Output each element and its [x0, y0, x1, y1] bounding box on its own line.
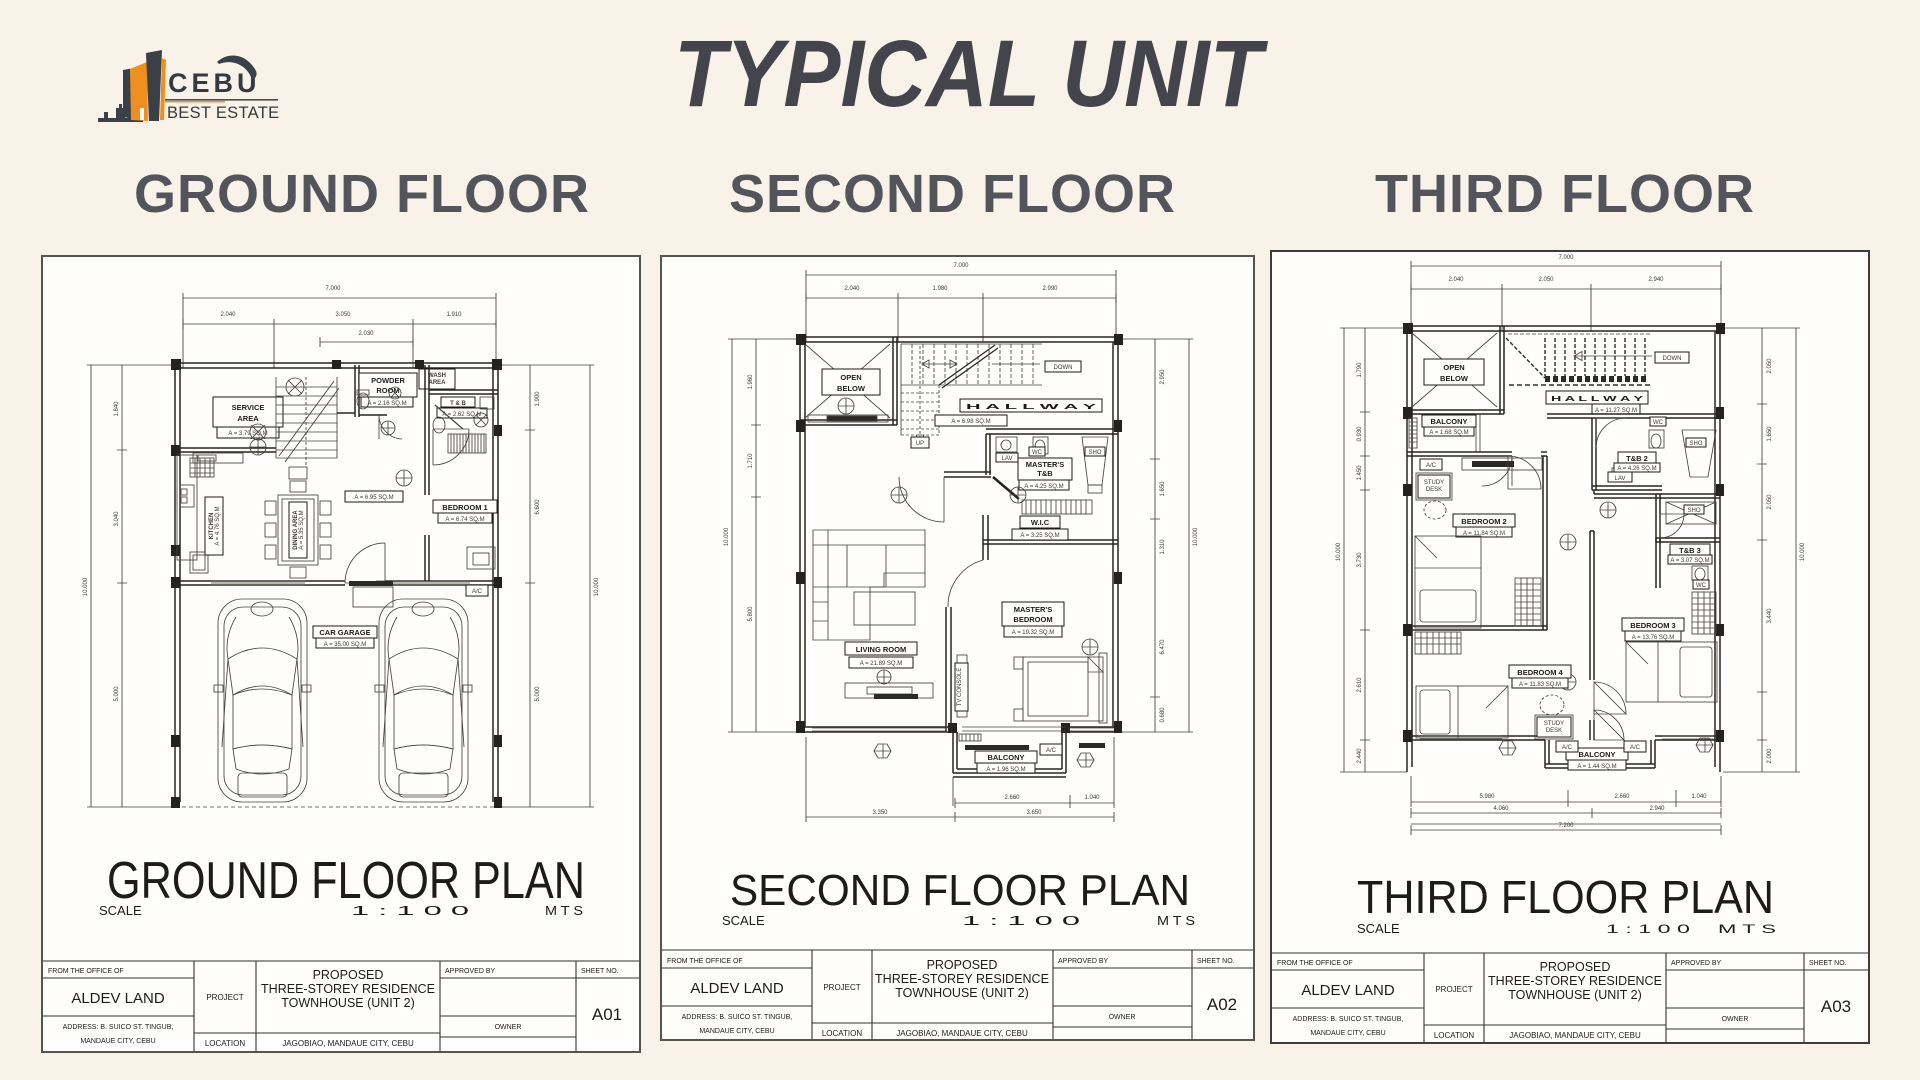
- svg-text:BALCONY: BALCONY: [1578, 750, 1615, 759]
- svg-text:A = 1.44 SQ.M: A = 1.44 SQ.M: [1577, 764, 1616, 770]
- svg-text:SHO: SHO: [1088, 450, 1101, 456]
- svg-text:SCALE: SCALE: [1357, 921, 1400, 936]
- svg-text:A01: A01: [592, 1005, 622, 1024]
- svg-text:SHO: SHO: [1687, 508, 1700, 514]
- svg-text:A = 3.25 SQ.M: A = 3.25 SQ.M: [1020, 533, 1059, 539]
- svg-text:STUDY: STUDY: [1544, 721, 1564, 727]
- svg-text:2.050: 2.050: [1538, 277, 1554, 283]
- svg-text:AREA: AREA: [428, 380, 446, 386]
- svg-text:SCALE: SCALE: [722, 913, 765, 928]
- svg-text:SHEET NO.: SHEET NO.: [581, 968, 619, 975]
- svg-text:ALDEV LAND: ALDEV LAND: [71, 990, 165, 1007]
- svg-text:A = 6.95 SQ.M: A = 6.95 SQ.M: [354, 495, 393, 501]
- svg-text:3.040: 3.040: [114, 511, 120, 527]
- svg-text:A = 6.74 SQ.M: A = 6.74 SQ.M: [445, 517, 484, 523]
- svg-text:A/C: A/C: [472, 589, 483, 595]
- svg-text:7.200: 7.200: [1558, 823, 1574, 829]
- svg-text:UP: UP: [916, 441, 924, 447]
- svg-text:SCALE: SCALE: [99, 903, 142, 918]
- svg-text:3.440: 3.440: [1767, 608, 1773, 624]
- svg-text:1.650: 1.650: [1160, 481, 1166, 497]
- svg-text:THREE-STOREY RESIDENCE: THREE-STOREY RESIDENCE: [875, 972, 1049, 986]
- svg-text:MANDAUE CITY, CEBU: MANDAUE CITY, CEBU: [699, 1028, 774, 1035]
- svg-text:JAGOBIAO, MANDAUE CITY, CEBU: JAGOBIAO, MANDAUE CITY, CEBU: [1509, 1031, 1641, 1040]
- svg-text:A = 11.27 SQ.M: A = 11.27 SQ.M: [1595, 408, 1637, 414]
- svg-text:M T S: M T S: [1157, 913, 1195, 928]
- svg-text:THIRD FLOOR PLAN: THIRD FLOOR PLAN: [1357, 871, 1774, 923]
- svg-text:3.050: 3.050: [335, 312, 351, 318]
- svg-text:4.060: 4.060: [1493, 806, 1509, 812]
- svg-text:TOWNHOUSE (UNIT 2): TOWNHOUSE (UNIT 2): [281, 996, 415, 1010]
- svg-text:2.660: 2.660: [1614, 794, 1630, 800]
- svg-text:A02: A02: [1207, 995, 1237, 1014]
- svg-text:PROPOSED: PROPOSED: [1540, 960, 1611, 974]
- svg-text:2.940: 2.940: [1649, 806, 1665, 812]
- svg-text:3.650: 3.650: [1026, 810, 1042, 816]
- svg-text:A = 4.25 SQ.M: A = 4.25 SQ.M: [1024, 484, 1063, 490]
- svg-text:APPROVED BY: APPROVED BY: [1671, 960, 1722, 967]
- svg-text:DESK: DESK: [1546, 728, 1562, 734]
- svg-text:A = 6.98 SQ.M: A = 6.98 SQ.M: [951, 419, 990, 425]
- svg-text:2.440: 2.440: [1357, 748, 1363, 764]
- svg-text:MANDAUE CITY, CEBU: MANDAUE CITY, CEBU: [80, 1038, 155, 1045]
- svg-text:WC: WC: [1653, 420, 1664, 426]
- svg-text:10.000: 10.000: [83, 577, 89, 596]
- svg-text:CEBU: CEBU: [168, 68, 261, 98]
- svg-text:1.040: 1.040: [1084, 795, 1100, 801]
- svg-text:DOWN: DOWN: [1663, 356, 1682, 362]
- svg-text:MANDAUE CITY, CEBU: MANDAUE CITY, CEBU: [1310, 1030, 1385, 1037]
- svg-text:1.310: 1.310: [1160, 539, 1166, 555]
- svg-text:H A L L W A Y: H A L L W A Y: [966, 402, 1096, 411]
- svg-text:2.000: 2.000: [1767, 748, 1773, 764]
- svg-text:A = 19.32 SQ.M: A = 19.32 SQ.M: [1012, 630, 1055, 636]
- svg-text:ALDEV LAND: ALDEV LAND: [690, 980, 784, 997]
- svg-text:FROM THE OFFICE OF: FROM THE OFFICE OF: [667, 958, 743, 965]
- svg-text:2.050: 2.050: [1767, 494, 1773, 510]
- svg-text:1.910: 1.910: [446, 312, 462, 318]
- svg-text:THREE-STOREY RESIDENCE: THREE-STOREY RESIDENCE: [261, 982, 435, 996]
- svg-text:10.000: 10.000: [1193, 527, 1199, 546]
- svg-text:H A L L W A Y: H A L L W A Y: [1551, 394, 1643, 403]
- svg-text:3.730: 3.730: [1357, 552, 1363, 568]
- svg-text:2.610: 2.610: [1357, 677, 1363, 693]
- svg-text:7.000: 7.000: [953, 263, 969, 269]
- svg-text:2.940: 2.940: [1648, 277, 1664, 283]
- svg-text:THREE-STOREY RESIDENCE: THREE-STOREY RESIDENCE: [1488, 974, 1662, 988]
- svg-text:5.800: 5.800: [748, 606, 754, 622]
- svg-text:A/C: A/C: [1046, 748, 1057, 754]
- svg-text:OWNER: OWNER: [1109, 1014, 1136, 1021]
- svg-text:7.000: 7.000: [1558, 255, 1574, 261]
- svg-text:A = 21.89 SQ.M: A = 21.89 SQ.M: [860, 661, 903, 667]
- svg-text:2.040: 2.040: [844, 286, 860, 292]
- svg-text:WC: WC: [1696, 583, 1707, 589]
- svg-text:LIVING ROOM: LIVING ROOM: [856, 645, 906, 654]
- svg-text:CAR GARAGE: CAR GARAGE: [319, 628, 370, 637]
- svg-text:10.000: 10.000: [724, 527, 730, 546]
- svg-text:GROUND FLOOR PLAN: GROUND FLOOR PLAN: [107, 852, 585, 910]
- svg-text:PROJECT: PROJECT: [823, 983, 860, 992]
- svg-text:3.350: 3.350: [872, 810, 888, 816]
- svg-text:1.840: 1.840: [114, 401, 120, 417]
- svg-text:T & B: T & B: [450, 401, 466, 407]
- svg-text:A = 4.26 SQ.M: A = 4.26 SQ.M: [1617, 466, 1656, 472]
- svg-text:LOCATION: LOCATION: [822, 1029, 863, 1038]
- svg-text:2.040: 2.040: [220, 312, 236, 318]
- svg-text:TOWNHOUSE (UNIT 2): TOWNHOUSE (UNIT 2): [895, 986, 1029, 1000]
- svg-text:A/C: A/C: [1562, 745, 1573, 751]
- svg-text:FROM THE OFFICE OF: FROM THE OFFICE OF: [1277, 960, 1353, 967]
- svg-text:2.050: 2.050: [1767, 358, 1773, 374]
- svg-text:AREA: AREA: [237, 414, 259, 423]
- svg-text:PROPOSED: PROPOSED: [927, 958, 998, 972]
- svg-text:5.000: 5.000: [114, 686, 120, 702]
- svg-text:10.000: 10.000: [1336, 542, 1342, 561]
- svg-text:DESK: DESK: [1426, 487, 1442, 493]
- svg-text:1 : 1 0 0: 1 : 1 0 0: [962, 913, 1080, 928]
- svg-text:BEST ESTATE: BEST ESTATE: [167, 104, 279, 122]
- svg-text:BEDROOM: BEDROOM: [1013, 615, 1052, 624]
- svg-text:ADDRESS: B. SUICO ST. TINGUB,: ADDRESS: B. SUICO ST. TINGUB,: [1293, 1016, 1404, 1023]
- svg-text:WASH: WASH: [428, 373, 446, 379]
- svg-text:OWNER: OWNER: [1722, 1016, 1749, 1023]
- svg-text:OPEN: OPEN: [1443, 363, 1464, 372]
- svg-text:1.790: 1.790: [1357, 362, 1363, 378]
- svg-text:5.980: 5.980: [1479, 794, 1495, 800]
- svg-text:BEDROOM 3: BEDROOM 3: [1630, 621, 1675, 630]
- svg-text:A/C: A/C: [1630, 745, 1641, 751]
- svg-text:BEDROOM 4: BEDROOM 4: [1517, 668, 1563, 677]
- svg-text:BALCONY: BALCONY: [987, 753, 1024, 762]
- svg-text:T&B 2: T&B 2: [1626, 454, 1648, 463]
- svg-text:TOWNHOUSE (UNIT 2): TOWNHOUSE (UNIT 2): [1508, 988, 1642, 1002]
- svg-text:M T S: M T S: [1718, 922, 1776, 936]
- svg-text:JAGOBIAO, MANDAUE CITY, CEBU: JAGOBIAO, MANDAUE CITY, CEBU: [896, 1029, 1028, 1038]
- svg-text:ADDRESS: B. SUICO ST. TINGUB,: ADDRESS: B. SUICO ST. TINGUB,: [63, 1024, 174, 1031]
- svg-text:SHO: SHO: [1689, 441, 1702, 447]
- svg-text:A = 11.83 SQ.M: A = 11.83 SQ.M: [1519, 682, 1561, 688]
- svg-text:M T S: M T S: [545, 903, 583, 918]
- svg-text:LOCATION: LOCATION: [1434, 1031, 1475, 1040]
- svg-text:LAV: LAV: [1615, 476, 1626, 482]
- svg-text:1 : 1 0 0: 1 : 1 0 0: [1606, 922, 1691, 936]
- svg-text:1.710: 1.710: [748, 453, 754, 469]
- svg-text:2.040: 2.040: [1448, 277, 1464, 283]
- svg-text:SHEET NO.: SHEET NO.: [1197, 958, 1235, 965]
- svg-text:1.900: 1.900: [535, 391, 541, 407]
- svg-text:6.470: 6.470: [1160, 639, 1166, 655]
- svg-text:T&B: T&B: [1037, 469, 1053, 478]
- svg-text:DOWN: DOWN: [1054, 365, 1073, 371]
- svg-text:BELOW: BELOW: [1440, 374, 1469, 383]
- svg-text:A = 1.68 SQ.M: A = 1.68 SQ.M: [1429, 430, 1468, 436]
- svg-text:1.450: 1.450: [1357, 465, 1363, 481]
- svg-text:10.000: 10.000: [594, 577, 600, 596]
- svg-text:1 : 1 0 0: 1 : 1 0 0: [351, 903, 469, 918]
- svg-text:A/C: A/C: [1426, 463, 1437, 469]
- svg-text:BALCONY: BALCONY: [1430, 417, 1467, 426]
- svg-text:OPEN: OPEN: [840, 373, 861, 382]
- svg-text:TYPICAL UNIT: TYPICAL UNIT: [674, 21, 1268, 127]
- svg-text:PROPOSED: PROPOSED: [313, 968, 384, 982]
- svg-text:1.960: 1.960: [748, 374, 754, 390]
- svg-text:W.I.C: W.I.C: [1031, 518, 1050, 527]
- svg-text:STUDY: STUDY: [1424, 480, 1444, 486]
- svg-text:APPROVED BY: APPROVED BY: [1058, 958, 1109, 965]
- svg-text:6.600: 6.600: [535, 499, 541, 515]
- svg-text:JAGOBIAO, MANDAUE CITY, CEBU: JAGOBIAO, MANDAUE CITY, CEBU: [282, 1039, 414, 1048]
- svg-text:SHEET NO.: SHEET NO.: [1809, 960, 1847, 967]
- svg-text:BEDROOM 2: BEDROOM 2: [1461, 517, 1506, 526]
- svg-text:A03: A03: [1821, 997, 1851, 1016]
- svg-text:2.990: 2.990: [1042, 286, 1058, 292]
- svg-text:ALDEV LAND: ALDEV LAND: [1301, 982, 1395, 999]
- svg-text:TV CONSOLE: TV CONSOLE: [957, 668, 963, 707]
- svg-text:0.680: 0.680: [1160, 707, 1166, 723]
- svg-text:SECOND FLOOR PLAN: SECOND FLOOR PLAN: [730, 866, 1190, 915]
- svg-text:T&B 3: T&B 3: [1679, 546, 1701, 555]
- svg-text:BEDROOM 1: BEDROOM 1: [442, 503, 487, 512]
- svg-text:A = 1.96 SQ.M: A = 1.96 SQ.M: [986, 767, 1025, 773]
- svg-text:7.000: 7.000: [325, 286, 341, 292]
- svg-text:1.980: 1.980: [932, 286, 948, 292]
- svg-text:SERVICE: SERVICE: [232, 403, 265, 412]
- svg-text:ADDRESS: B. SUICO ST. TINGUB,: ADDRESS: B. SUICO ST. TINGUB,: [682, 1014, 793, 1021]
- svg-text:PROJECT: PROJECT: [1435, 985, 1472, 994]
- svg-text:A = 3.07 SQ.M: A = 3.07 SQ.M: [1670, 558, 1709, 564]
- svg-text:PROJECT: PROJECT: [206, 993, 243, 1002]
- svg-text:2.660: 2.660: [1004, 795, 1020, 801]
- svg-text:A = 4.76 SQ.M: A = 4.76 SQ.M: [215, 506, 221, 545]
- svg-text:2.950: 2.950: [1160, 369, 1166, 385]
- svg-text:A = 2.16 SQ.M: A = 2.16 SQ.M: [367, 401, 406, 407]
- svg-text:BELOW: BELOW: [837, 384, 866, 393]
- svg-text:A = 13.76 SQ.M: A = 13.76 SQ.M: [1632, 635, 1675, 641]
- svg-text:2.030: 2.030: [358, 331, 374, 337]
- svg-text:WC: WC: [1032, 450, 1043, 456]
- svg-text:A = 5.35 SQ.M: A = 5.35 SQ.M: [299, 510, 305, 549]
- svg-text:OWNER: OWNER: [495, 1024, 522, 1031]
- svg-text:POWDER: POWDER: [371, 376, 405, 385]
- svg-text:1.040: 1.040: [1691, 794, 1707, 800]
- svg-text:0.930: 0.930: [1357, 426, 1363, 442]
- svg-text:A = 35.00 SQ.M: A = 35.00 SQ.M: [324, 642, 367, 648]
- svg-text:FROM THE OFFICE OF: FROM THE OFFICE OF: [48, 968, 124, 975]
- svg-text:5.000: 5.000: [535, 686, 541, 702]
- svg-text:APPROVED BY: APPROVED BY: [445, 968, 496, 975]
- svg-text:MASTER'S: MASTER'S: [1026, 460, 1064, 469]
- svg-text:LAV: LAV: [1002, 456, 1013, 462]
- svg-text:10.000: 10.000: [1800, 542, 1806, 561]
- svg-text:LOCATION: LOCATION: [205, 1039, 246, 1048]
- svg-text:MASTER'S: MASTER'S: [1014, 605, 1052, 614]
- svg-text:1.650: 1.650: [1767, 426, 1773, 442]
